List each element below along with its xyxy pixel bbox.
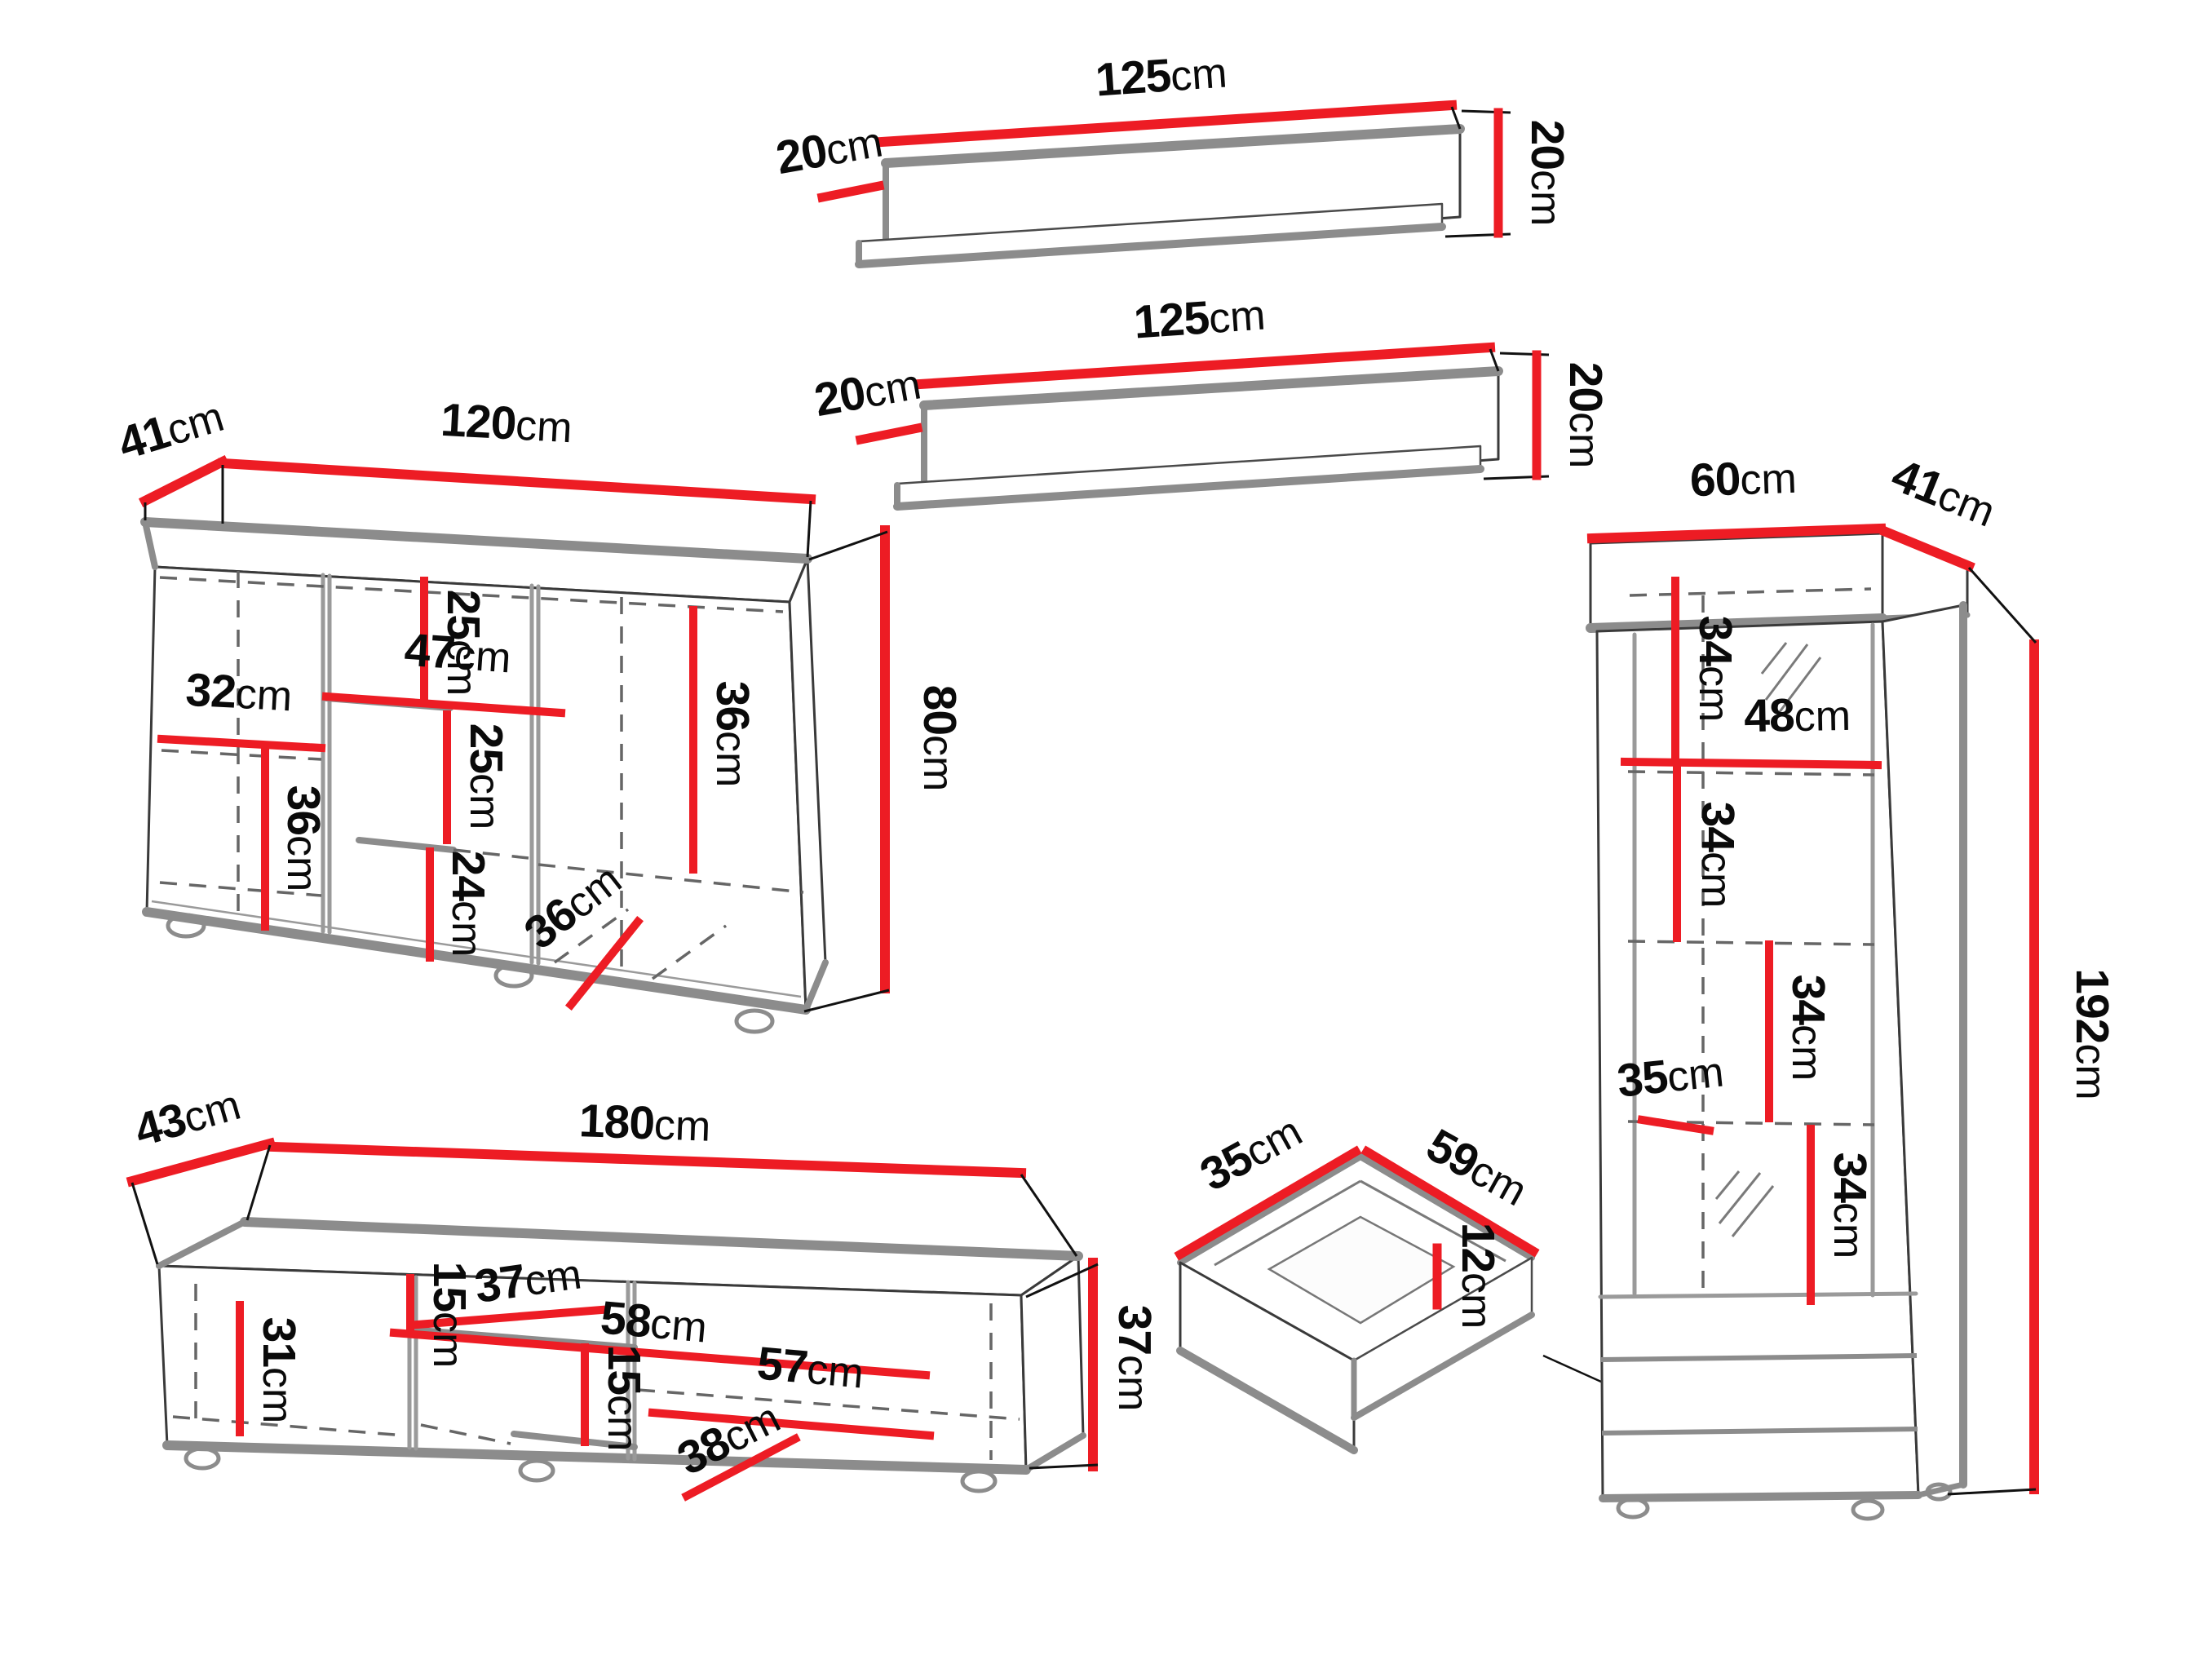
cabinet-height-label: 192cm — [2066, 968, 2118, 1099]
wall-shelf-bottom: 125cm 20cm 20cm — [811, 287, 1612, 507]
shelf-bottom-width-label: 125cm — [1132, 287, 1267, 348]
furniture-dimensions-diagram: 125cm 20cm 20cm 125cm 20cm 20cm — [0, 0, 2212, 1659]
shelf-bottom-depth-label: 20cm — [811, 356, 925, 427]
shelf-bottom-height-label: 20cm — [1559, 362, 1612, 469]
tv-stand-left-section-label: 31cm — [253, 1317, 305, 1424]
cabinet-section3-label: 34cm — [1782, 975, 1834, 1082]
tv-stand-bottom-gap-label: 15cm — [598, 1345, 650, 1452]
tv-stand-top-gap-label: 15cm — [423, 1262, 476, 1369]
drawer-height-label: 12cm — [1452, 1223, 1504, 1329]
sideboard-left-section-label: 36cm — [277, 785, 330, 892]
wall-shelf-bottom-body — [897, 371, 1498, 507]
wall-shelf-top-body — [859, 129, 1460, 264]
wall-shelf-top: 125cm 20cm 20cm — [772, 45, 1573, 264]
cabinet-depth-label: 41cm — [1885, 449, 2003, 537]
sideboard: 41cm 120cm 80cm 25cm 47cm 25cm 36cm 32cm… — [113, 389, 966, 1032]
tv-stand-depth-label: 43cm — [129, 1077, 246, 1157]
tv-stand-width-label: 180cm — [578, 1095, 712, 1152]
cabinet-width-label: 60cm — [1689, 451, 1798, 507]
cabinet-section1-label: 34cm — [1689, 616, 1741, 723]
sideboard-mid-section-label: 25cm — [460, 723, 512, 830]
cabinet-shelf-width-label: 48cm — [1744, 688, 1851, 742]
tv-stand: 43cm 180cm 37cm 31cm 15cm 37cm 58cm 57cm… — [129, 1077, 1161, 1496]
sideboard-left-shelf-width-label: 32cm — [184, 664, 294, 722]
cabinet-section4-label: 34cm — [1824, 1152, 1876, 1259]
cabinet-section2-label: 34cm — [1692, 802, 1744, 909]
shelf-top-depth-label: 20cm — [772, 114, 887, 184]
tv-stand-width-dimension-line — [273, 1147, 1021, 1173]
display-cabinet: 60cm 41cm 192cm 34cm 48cm 34cm 34cm 35cm… — [1590, 449, 2118, 1519]
tv-stand-height-label: 37cm — [1108, 1305, 1161, 1412]
sideboard-height-label: 80cm — [914, 685, 966, 792]
shelf-top-width-label: 125cm — [1094, 45, 1229, 106]
sideboard-bottom-section-label: 24cm — [442, 851, 494, 958]
sideboard-depth-dimension-line — [145, 462, 223, 501]
shelf-top-height-label: 20cm — [1521, 120, 1573, 227]
sideboard-right-section-label: 36cm — [706, 681, 759, 788]
sideboard-width-label: 120cm — [440, 394, 574, 453]
sideboard-depth-label: 41cm — [113, 389, 230, 470]
shelf-top-depth-dimension-line — [822, 186, 879, 197]
shelf-bottom-depth-dimension-line — [860, 428, 918, 440]
sideboard-width-dimension-line — [223, 463, 811, 499]
